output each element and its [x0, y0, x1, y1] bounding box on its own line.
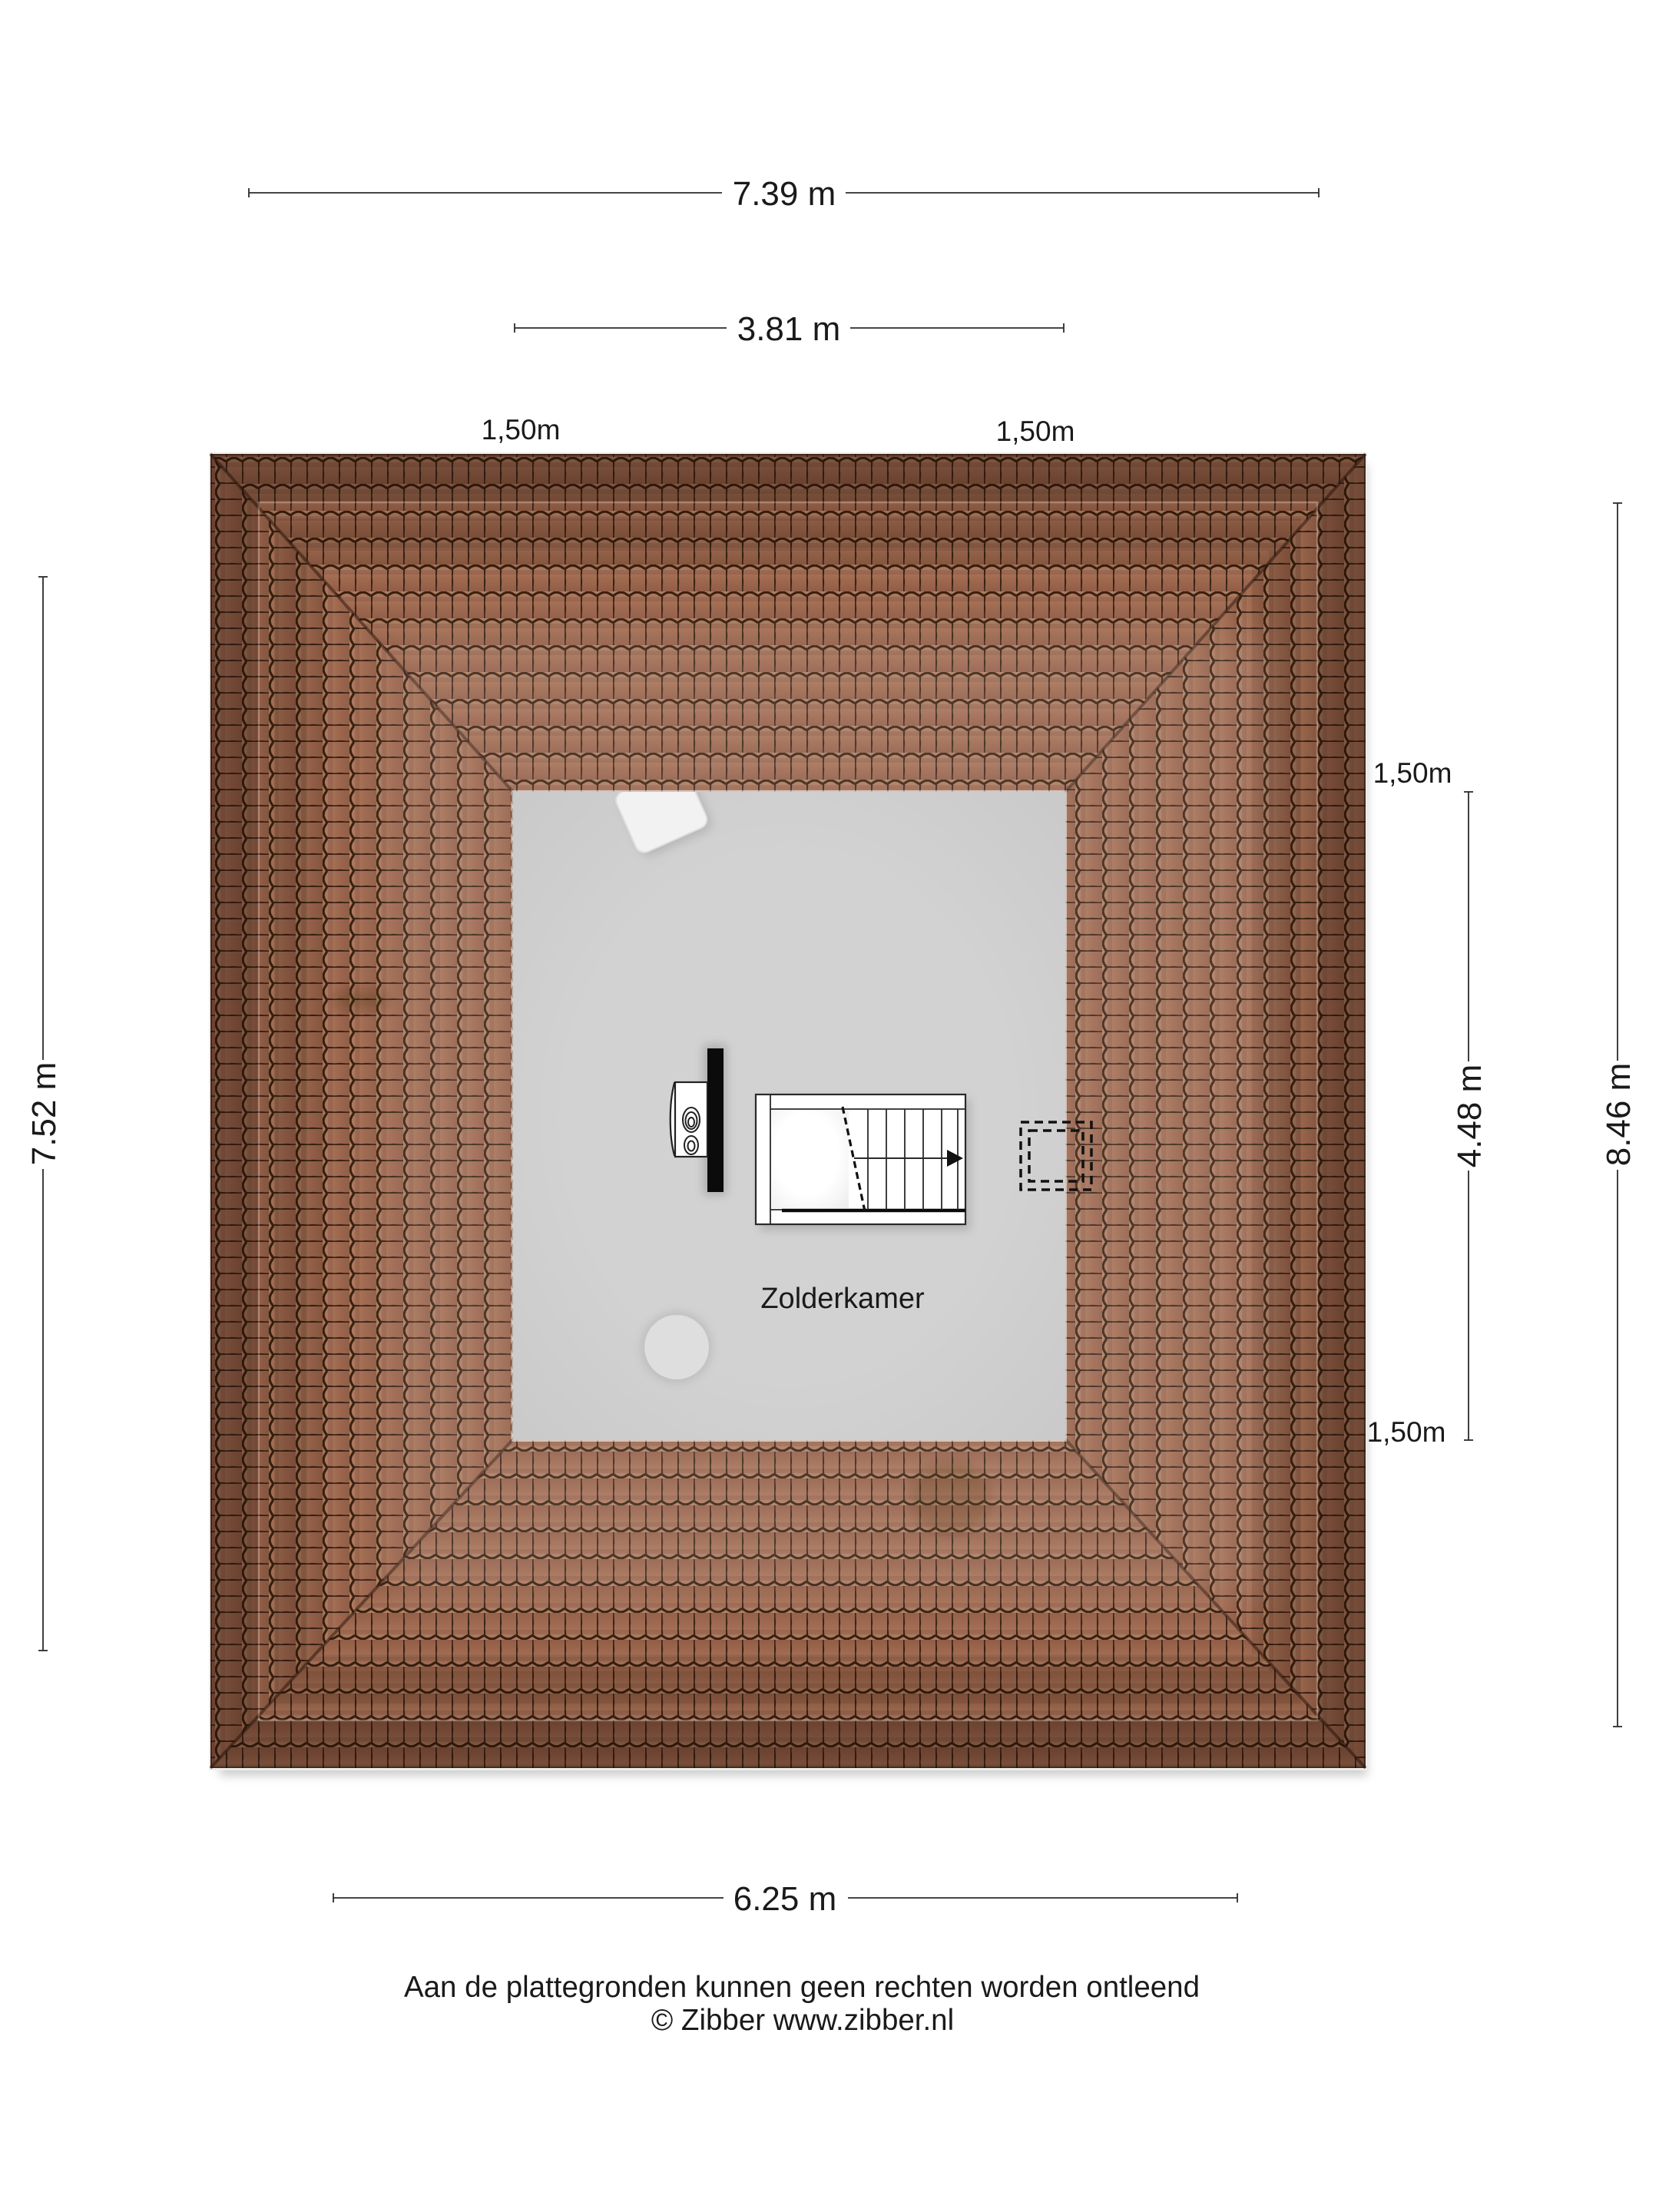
svg-text:4.48 m: 4.48 m [1451, 1065, 1488, 1168]
svg-text:7.39 m: 7.39 m [733, 175, 836, 213]
svg-text:1,50m: 1,50m [482, 414, 561, 445]
svg-text:© Zibber www.zibber.nl: © Zibber www.zibber.nl [651, 2004, 954, 2037]
svg-text:1,50m: 1,50m [1367, 1416, 1446, 1448]
svg-text:7.52 m: 7.52 m [25, 1062, 63, 1166]
svg-text:Aan de plattegronden kunnen ge: Aan de plattegronden kunnen geen rechten… [404, 1971, 1200, 2004]
svg-text:1,50m: 1,50m [996, 416, 1075, 447]
svg-text:1,50m: 1,50m [1373, 757, 1452, 789]
svg-text:8.46 m: 8.46 m [1600, 1063, 1637, 1167]
svg-text:Zolderkamer: Zolderkamer [760, 1283, 925, 1315]
svg-text:3.81 m: 3.81 m [737, 310, 841, 348]
svg-text:6.25 m: 6.25 m [733, 1880, 837, 1918]
